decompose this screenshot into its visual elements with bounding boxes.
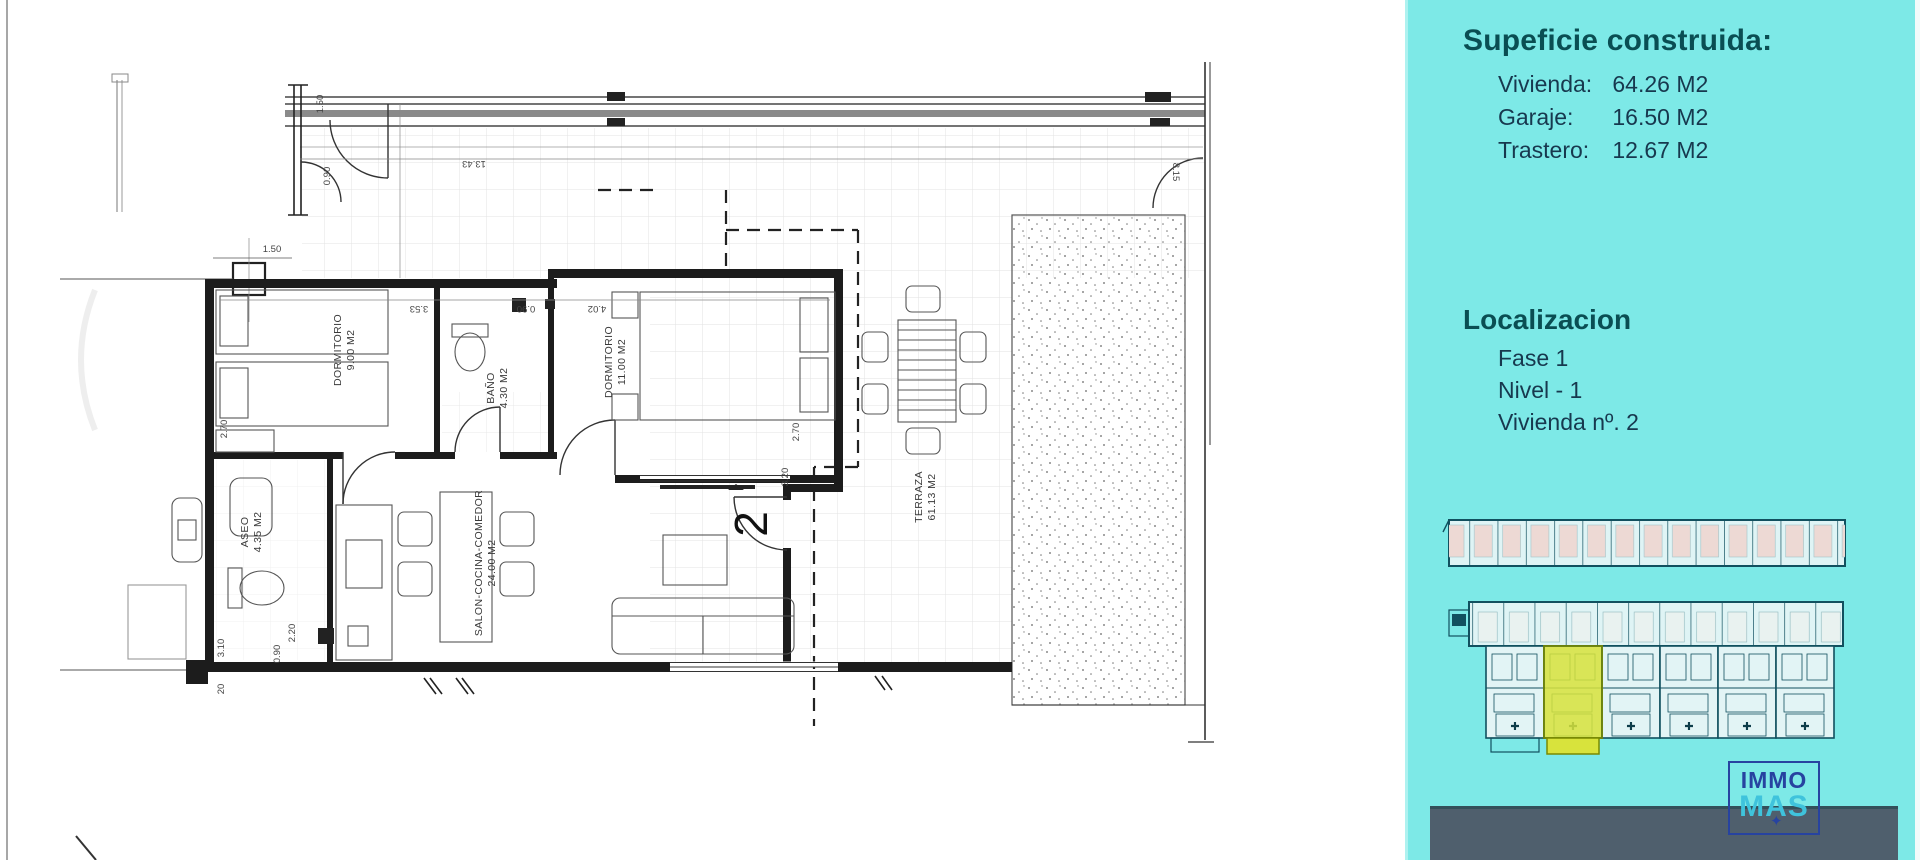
dim-label: 3.10 <box>216 639 227 658</box>
minimap-highlighted-unit <box>1544 646 1602 738</box>
logo-immo-text: IMMO <box>1730 769 1818 792</box>
dim-label: 1.50 <box>315 95 326 114</box>
page-border <box>7 0 128 860</box>
surface-title: Supeficie construida: <box>1463 24 1772 58</box>
surface-label: Garaje: <box>1498 101 1606 134</box>
bottom-band <box>1430 806 1898 860</box>
location-list: Fase 1 Nivel - 1 Vivienda nº. 2 <box>1498 342 1639 438</box>
room-area: 9.00 M2 <box>345 330 357 371</box>
location-item: Fase 1 <box>1498 342 1639 374</box>
dim-label: 2.70 <box>791 423 802 442</box>
dim-label: 0.90 <box>322 167 333 186</box>
dim-label: 2.70 <box>219 420 230 439</box>
room-area: 4.35 M2 <box>252 512 264 553</box>
dim-label: 4.02 <box>588 303 607 314</box>
room-label: SALON-COCINA-COMEDOR <box>473 490 485 636</box>
info-panel: Supeficie construida: Vivienda: 64.26 M2… <box>1405 0 1918 860</box>
dim-label: 8.15 <box>1170 163 1181 182</box>
surface-row: Trastero: 12.67 M2 <box>1498 134 1708 167</box>
room-label: ASEO <box>239 517 251 548</box>
dim-label: 3.20 <box>780 468 791 487</box>
dim-label: 0.90 <box>272 645 283 664</box>
dim-label: 1.50 <box>263 244 282 255</box>
room-area: 11.00 M2 <box>616 339 628 385</box>
room-area: 24.00 M2 <box>486 540 498 587</box>
minimap-dwelling-row <box>1486 646 1834 754</box>
surface-value: 12.67 M2 <box>1612 137 1708 163</box>
location-item: Vivienda nº. 2 <box>1498 406 1639 438</box>
room-label: DORMITORIO <box>603 326 615 398</box>
dim-label: 3.53 <box>410 303 429 314</box>
right-edge-strip <box>1915 0 1920 860</box>
surface-row: Garaje: 16.50 M2 <box>1498 101 1708 134</box>
dim-label: 13.43 <box>462 158 486 169</box>
wall-ticks <box>60 670 892 694</box>
page: DORMITORIO 9.00 M2 BAÑO 4.30 M2 DORMITOR… <box>0 0 1920 860</box>
minimap-garage-row <box>1443 520 1845 566</box>
dim-label: 2.20 <box>287 624 298 643</box>
room-area: 4.30 M2 <box>498 368 510 409</box>
floorplan-drawing: DORMITORIO 9.00 M2 BAÑO 4.30 M2 DORMITOR… <box>0 0 1405 860</box>
surface-value: 16.50 M2 <box>1612 104 1708 130</box>
surface-label: Trastero: <box>1498 134 1606 167</box>
immo-mas-logo: IMMO MAS ✦ <box>1728 761 1820 835</box>
surface-label: Vivienda: <box>1498 68 1606 101</box>
location-item: Nivel - 1 <box>1498 374 1639 406</box>
gravel-area <box>1012 215 1185 705</box>
room-area: 61.13 M2 <box>926 474 938 521</box>
surface-list: Vivienda: 64.26 M2 Garaje: 16.50 M2 Tras… <box>1498 68 1708 167</box>
room-label: TERRAZA <box>913 471 925 523</box>
site-minimap: ✚ <box>1441 518 1851 758</box>
surface-value: 64.26 M2 <box>1612 71 1708 97</box>
location-title: Localizacion <box>1463 304 1631 336</box>
dim-label: 0.90 <box>517 303 536 314</box>
room-label: BAÑO <box>484 372 497 403</box>
surface-row: Vivienda: 64.26 M2 <box>1498 68 1708 101</box>
unit-number: 2 <box>725 511 777 537</box>
dim-label: 20 <box>216 684 227 695</box>
star-icon: ✦ <box>1770 812 1783 830</box>
room-label: DORMITORIO <box>332 314 344 386</box>
minimap-storage-row <box>1449 602 1843 646</box>
